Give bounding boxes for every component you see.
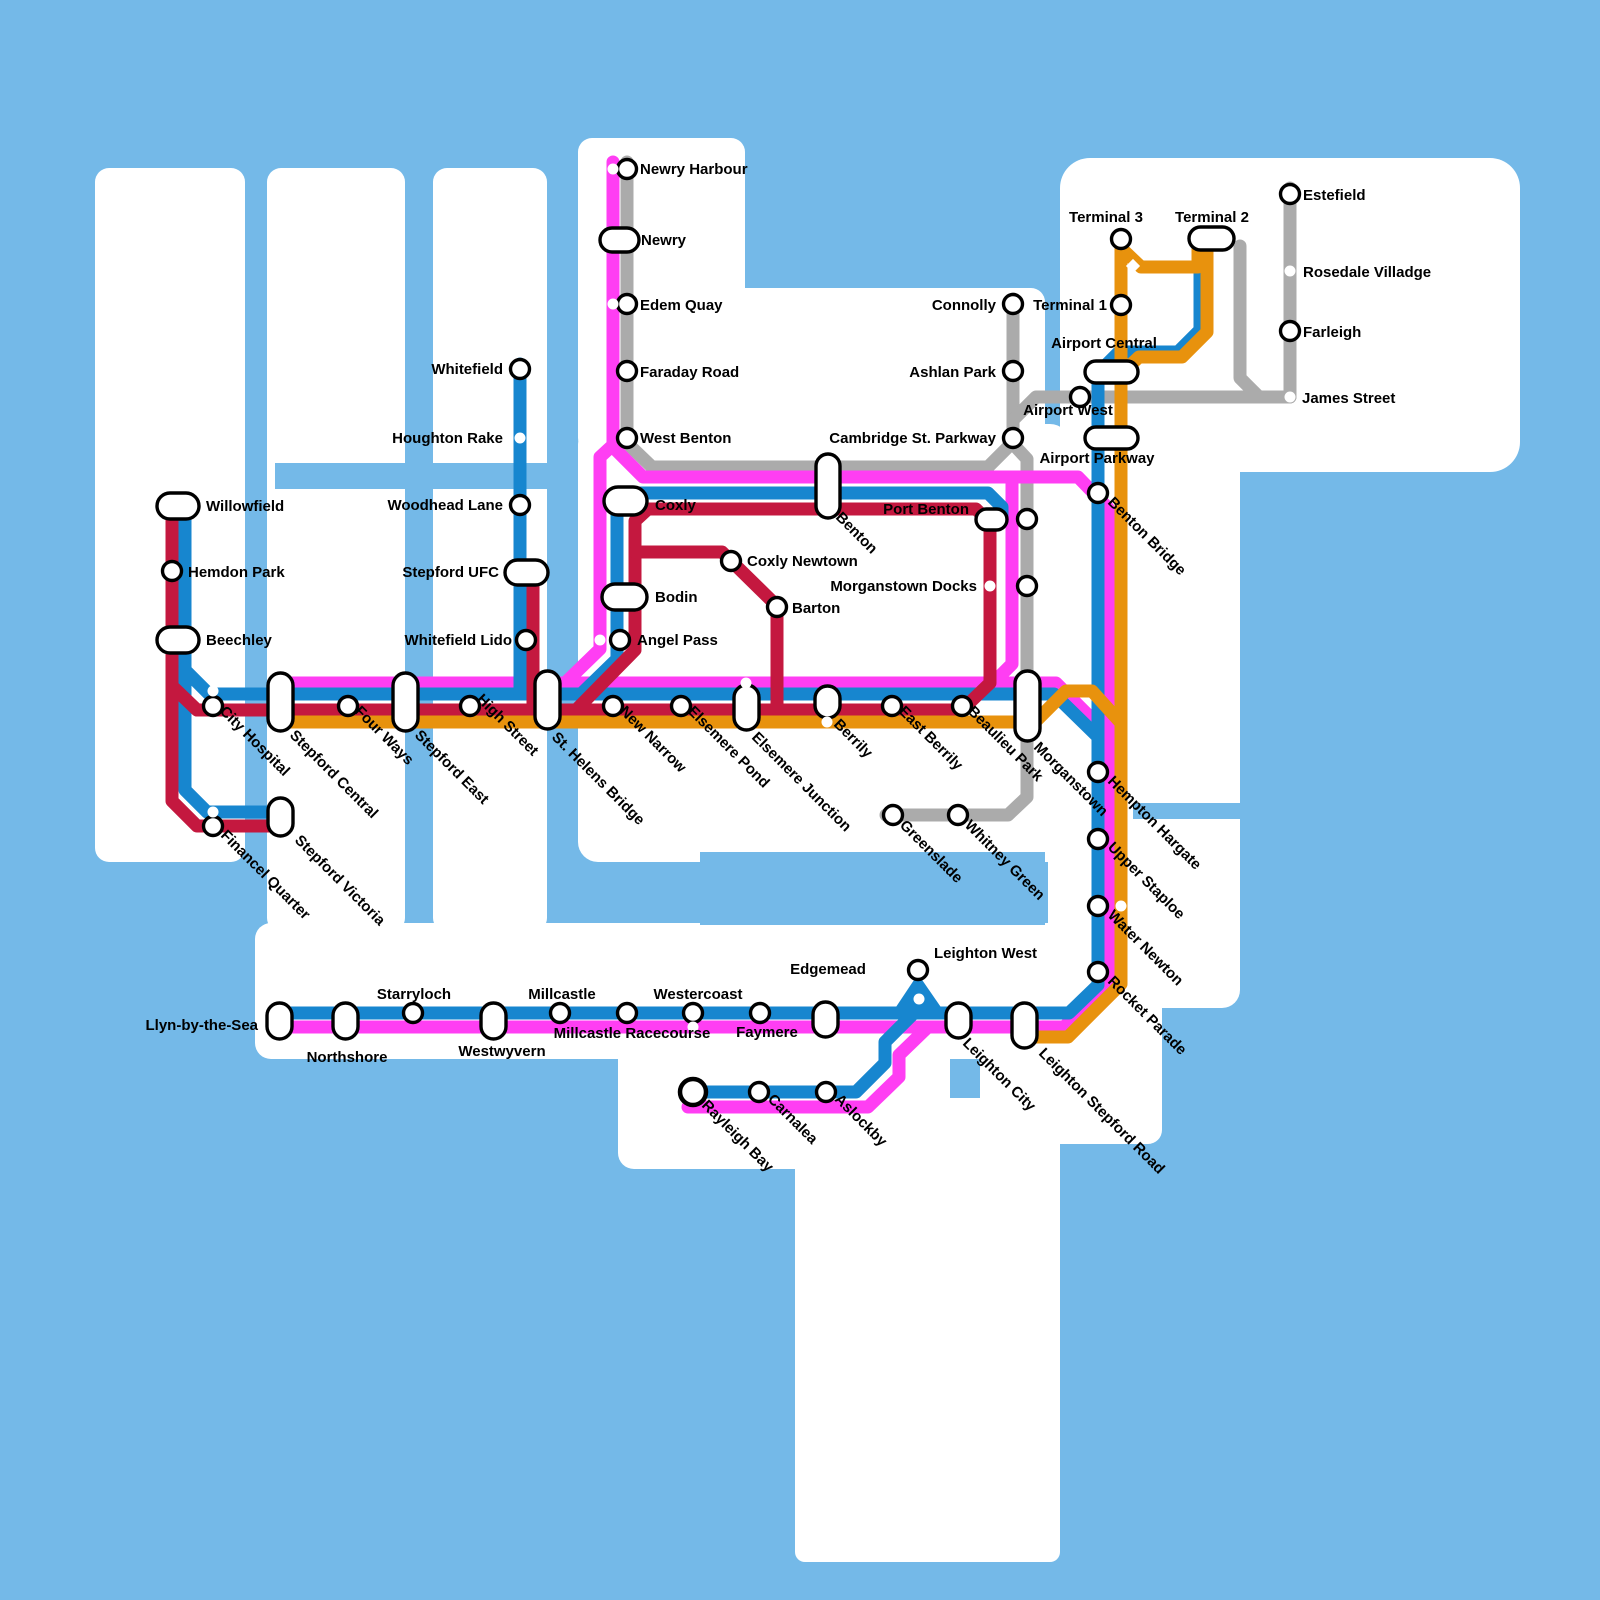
station-pill-beechley[interactable] xyxy=(157,627,199,653)
station-label-morganstown-docks: Morganstown Docks xyxy=(830,578,977,595)
station-dot-morganstown-docks-red[interactable] xyxy=(985,581,996,592)
station-circle-terminal-3[interactable] xyxy=(1112,230,1131,249)
station-pill-newry[interactable] xyxy=(600,228,639,252)
station-label-port-benton: Port Benton xyxy=(883,501,969,518)
station-pill-berrily[interactable] xyxy=(815,686,840,718)
station-pill-edgemead[interactable] xyxy=(813,1002,838,1037)
station-pill-terminal-2[interactable] xyxy=(1189,227,1234,250)
station-pill-airport-central[interactable] xyxy=(1085,361,1138,383)
station-pill-leighton-city[interactable] xyxy=(946,1003,971,1038)
station-pill-stepford-victoria[interactable] xyxy=(268,798,293,836)
land-area-11 xyxy=(795,1098,1060,1562)
station-pill-leighton-stepford-road[interactable] xyxy=(1012,1003,1037,1048)
water-channel-1 xyxy=(1133,803,1562,819)
station-label-terminal-1: Terminal 1 xyxy=(1033,297,1107,314)
station-label-faraday-road: Faraday Road xyxy=(640,364,739,381)
station-label-farleigh: Farleigh xyxy=(1303,324,1361,341)
station-label-newry-harbour: Newry Harbour xyxy=(640,161,748,178)
station-label-airport-parkway: Airport Parkway xyxy=(1039,450,1155,467)
station-label-willowfield: Willowfield xyxy=(206,498,284,515)
station-circle-aslockby[interactable] xyxy=(817,1083,836,1102)
station-label-estefield: Estefield xyxy=(1303,187,1366,204)
station-dot-newry-harbour-magenta[interactable] xyxy=(608,164,619,175)
station-circle-angel-pass[interactable] xyxy=(611,631,630,650)
station-circle-ashlan-park[interactable] xyxy=(1004,362,1023,381)
station-circle-millcastle[interactable] xyxy=(551,1004,570,1023)
station-label-terminal-2: Terminal 2 xyxy=(1175,209,1249,226)
station-pill-llyn-by-the-sea[interactable] xyxy=(267,1003,292,1039)
station-label-terminal-3: Terminal 3 xyxy=(1069,209,1143,226)
station-label-cambridge-st-parkway: Cambridge St. Parkway xyxy=(829,430,996,447)
station-label-westercoast: Westercoast xyxy=(654,986,743,1003)
water-channel-2 xyxy=(700,852,1045,925)
station-dot-city-hospital-blue[interactable] xyxy=(208,686,219,697)
station-circle-carnalea[interactable] xyxy=(750,1083,769,1102)
station-label-hemdon-park: Hemdon Park xyxy=(188,564,285,581)
station-label-west-benton: West Benton xyxy=(640,430,731,447)
station-label-rosedale-villadge: Rosedale Villadge xyxy=(1303,264,1431,281)
station-circle-leighton-west[interactable] xyxy=(909,961,928,980)
station-pill-stepford-central[interactable] xyxy=(268,673,293,731)
station-circle-upper-staploe[interactable] xyxy=(1089,830,1108,849)
station-circle-benton-bridge[interactable] xyxy=(1089,484,1108,503)
station-circle-terminal-1[interactable] xyxy=(1112,296,1131,315)
transit-map: Newry HarbourNewryEdem QuayFaraday RoadW… xyxy=(0,0,1600,1600)
station-circle-hemdon-park[interactable] xyxy=(163,562,182,581)
station-circle-coxly-newtown[interactable] xyxy=(722,552,741,571)
station-circle-millcastle-racecourse[interactable] xyxy=(618,1004,637,1023)
station-dot-leighton-west-inner[interactable] xyxy=(914,994,925,1005)
station-circle-edem-quay[interactable] xyxy=(618,295,637,314)
station-circle-barton[interactable] xyxy=(768,598,787,617)
station-circle-starryloch[interactable] xyxy=(404,1004,423,1023)
station-circle-cambridge-st-parkway[interactable] xyxy=(1004,429,1023,448)
station-label-airport-west: Airport West xyxy=(1023,402,1113,419)
station-circle-farleigh[interactable] xyxy=(1281,322,1300,341)
station-label-woodhead-lane: Woodhead Lane xyxy=(387,497,503,514)
station-pill-northshore[interactable] xyxy=(333,1003,358,1039)
station-dot-angel-pass-magenta[interactable] xyxy=(595,635,606,646)
station-label-faymere: Faymere xyxy=(736,1024,798,1041)
station-label-ashlan-park: Ashlan Park xyxy=(909,364,996,381)
station-circle-whitney-green[interactable] xyxy=(949,806,968,825)
station-circle-whitefield[interactable] xyxy=(511,360,530,379)
station-pill-port-benton[interactable] xyxy=(976,509,1007,530)
station-label-leighton-west: Leighton West xyxy=(934,945,1037,962)
station-label-northshore: Northshore xyxy=(307,1049,388,1066)
station-pill-elsemere-junction[interactable] xyxy=(734,685,759,730)
station-dot-houghton-rake[interactable] xyxy=(515,433,526,444)
station-label-newry: Newry xyxy=(641,232,687,249)
station-dot-elsemere-junction-magenta[interactable] xyxy=(741,678,752,689)
station-circle-estefield[interactable] xyxy=(1281,185,1300,204)
station-pill-benton[interactable] xyxy=(816,454,840,518)
station-label-whitefield: Whitefield xyxy=(431,361,503,378)
station-pill-stepford-ufc[interactable] xyxy=(505,560,548,585)
station-pill-stepford-east[interactable] xyxy=(393,673,418,731)
land-area-2 xyxy=(433,168,547,932)
station-label-millcastle: Millcastle xyxy=(528,986,596,1003)
station-circle-west-benton[interactable] xyxy=(618,429,637,448)
station-dot-edem-quay-magenta[interactable] xyxy=(608,299,619,310)
station-label-stepford-ufc: Stepford UFC xyxy=(402,564,499,581)
station-label-coxly: Coxly xyxy=(655,497,697,514)
station-circle-faraday-road[interactable] xyxy=(618,362,637,381)
station-pill-morganstown[interactable] xyxy=(1015,671,1040,741)
station-label-millcastle-racecourse: Millcastle Racecourse xyxy=(554,1025,711,1042)
station-label-houghton-rake: Houghton Rake xyxy=(392,430,503,447)
station-circle-hempton-hargate[interactable] xyxy=(1089,763,1108,782)
station-dot-james-street[interactable] xyxy=(1285,392,1296,403)
station-circle-whitefield-lido[interactable] xyxy=(517,631,536,650)
station-label-westwyvern: Westwyvern xyxy=(458,1043,545,1060)
transit-map-stage: Newry HarbourNewryEdem QuayFaraday RoadW… xyxy=(0,0,1600,1600)
station-label-barton: Barton xyxy=(792,600,840,617)
station-pill-bodin[interactable] xyxy=(602,584,647,610)
station-pill-westwyvern[interactable] xyxy=(481,1003,506,1039)
station-label-whitefield-lido: Whitefield Lido xyxy=(405,632,512,649)
station-label-connolly: Connolly xyxy=(932,297,997,314)
station-circle-newry-harbour[interactable] xyxy=(618,160,637,179)
station-label-coxly-newtown: Coxly Newtown xyxy=(747,553,858,570)
station-label-angel-pass: Angel Pass xyxy=(637,632,718,649)
station-pill-st-helens-bridge[interactable] xyxy=(535,671,560,729)
station-label-bodin: Bodin xyxy=(655,589,698,606)
station-circle-westercoast[interactable] xyxy=(684,1004,703,1023)
station-label-airport-central: Airport Central xyxy=(1051,335,1157,352)
station-label-james-street: James Street xyxy=(1302,390,1395,407)
station-label-llyn-by-the-sea: Llyn-by-the-Sea xyxy=(145,1017,258,1034)
station-pill-willowfield[interactable] xyxy=(157,493,199,519)
station-circle-morganstown-docks-gray[interactable] xyxy=(1018,577,1037,596)
station-terminus-rayleigh-bay[interactable] xyxy=(680,1079,706,1105)
station-circle-woodhead-lane[interactable] xyxy=(511,496,530,515)
station-dot-financel-quarter-blue[interactable] xyxy=(208,807,219,818)
station-pill-coxly[interactable] xyxy=(604,487,647,515)
station-circle-faymere[interactable] xyxy=(751,1004,770,1023)
station-circle-connolly[interactable] xyxy=(1004,295,1023,314)
station-label-edem-quay: Edem Quay xyxy=(640,297,723,314)
station-dot-rosedale-villadge[interactable] xyxy=(1285,266,1296,277)
station-circle-rocket-parade[interactable] xyxy=(1089,963,1108,982)
station-circle-financel-quarter[interactable] xyxy=(204,817,223,836)
station-circle-port-benton-gray[interactable] xyxy=(1018,510,1037,529)
station-pill-airport-parkway[interactable] xyxy=(1085,427,1138,449)
station-circle-water-newton[interactable] xyxy=(1089,897,1108,916)
station-label-beechley: Beechley xyxy=(206,632,273,649)
station-circle-greenslade[interactable] xyxy=(884,806,903,825)
station-label-edgemead: Edgemead xyxy=(790,961,866,978)
station-label-starryloch: Starryloch xyxy=(377,986,451,1003)
